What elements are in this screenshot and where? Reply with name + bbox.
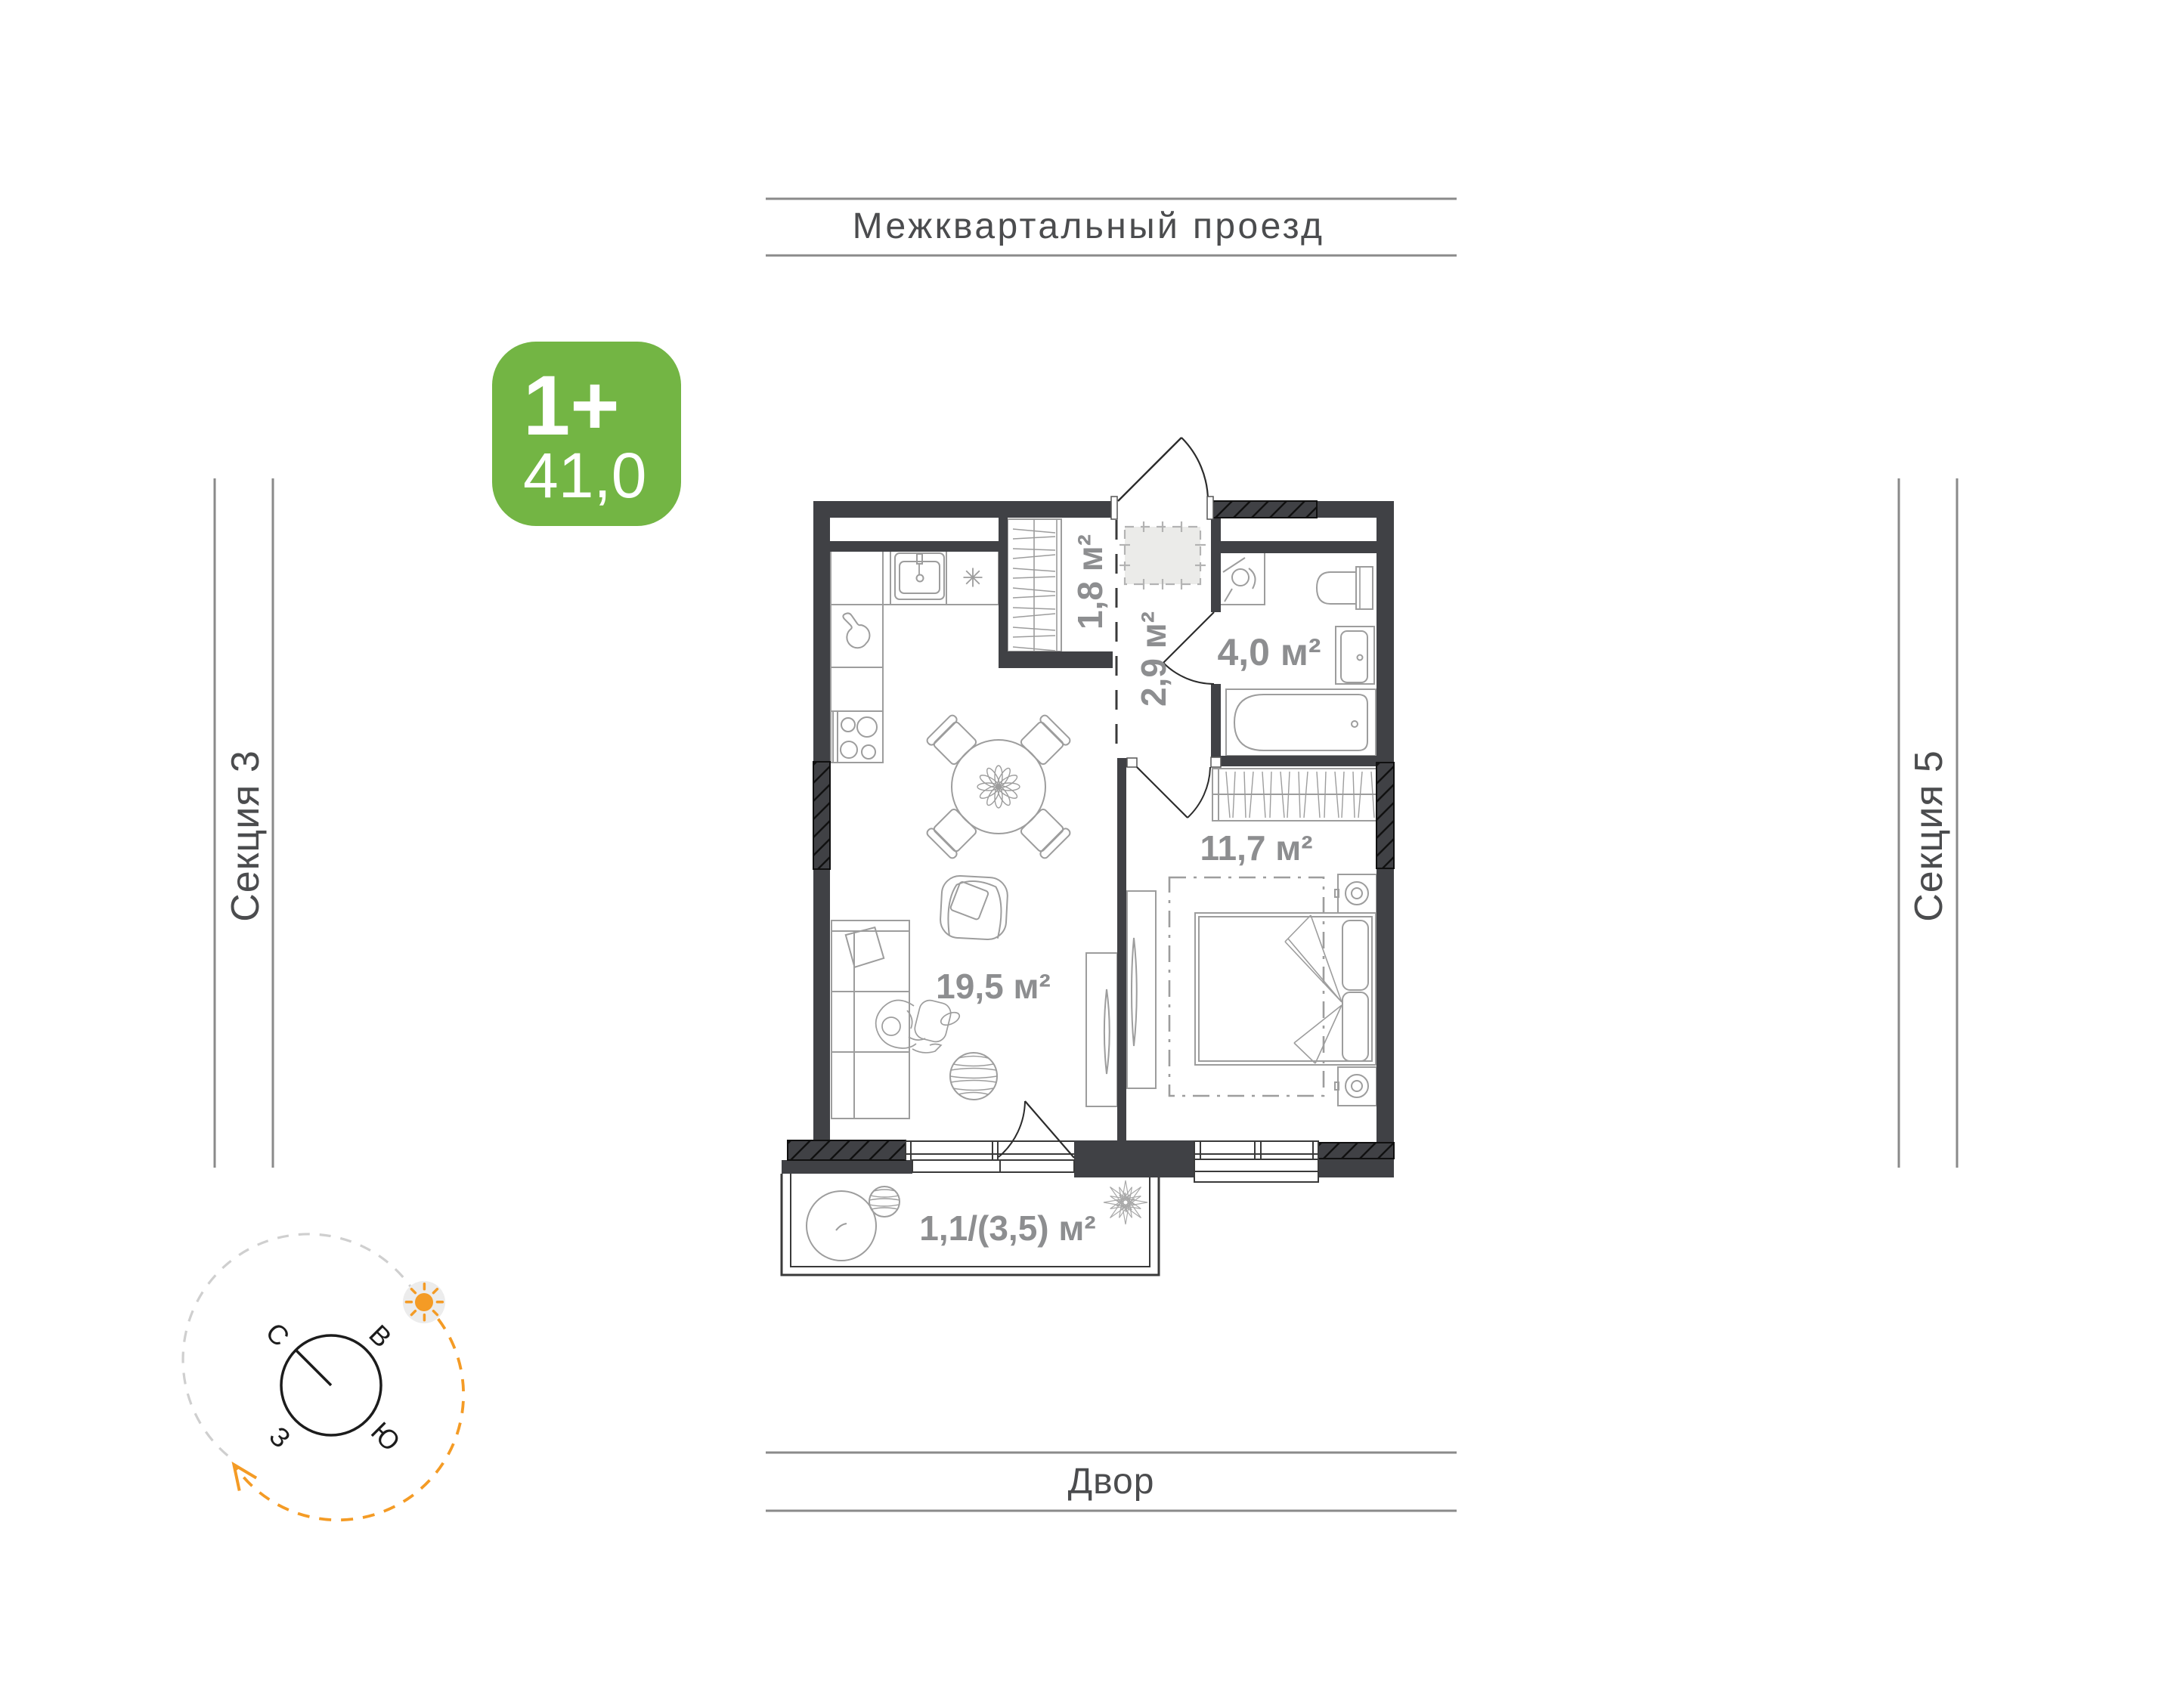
svg-text:1,8 м²: 1,8 м²: [1070, 534, 1110, 630]
svg-text:Двор: Двор: [1068, 1462, 1155, 1502]
svg-text:Межквартальный проезд: Межквартальный проезд: [853, 206, 1325, 246]
svg-text:11,7 м²: 11,7 м²: [1200, 828, 1312, 868]
svg-text:1+: 1+: [523, 358, 620, 453]
svg-text:4,0 м²: 4,0 м²: [1217, 631, 1321, 673]
svg-text:2,9 м²: 2,9 м²: [1134, 611, 1173, 707]
svg-text:1,1/(3,5) м²: 1,1/(3,5) м²: [919, 1208, 1095, 1248]
svg-text:Секция 3: Секция 3: [224, 750, 268, 922]
svg-text:19,5 м²: 19,5 м²: [936, 967, 1051, 1006]
svg-text:41,0: 41,0: [523, 440, 647, 511]
svg-text:Секция 5: Секция 5: [1907, 750, 1951, 922]
